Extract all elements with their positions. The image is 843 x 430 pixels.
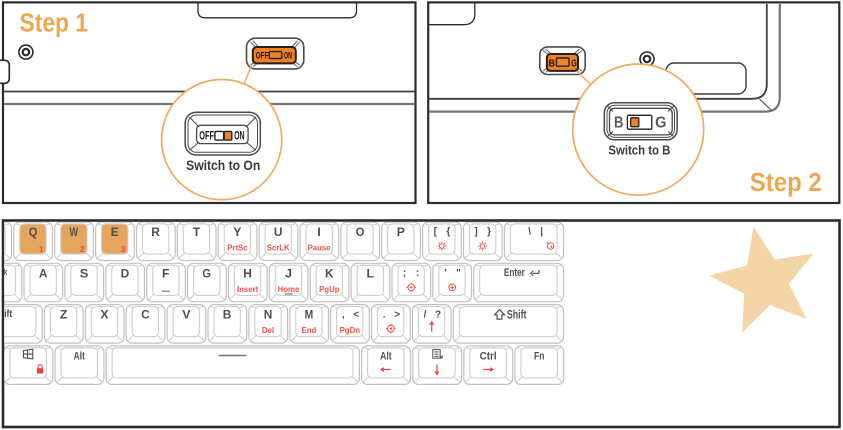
svg-text::: : — [416, 268, 419, 279]
svg-text:2: 2 — [80, 245, 85, 254]
svg-text:{: { — [446, 227, 450, 238]
svg-text:>: > — [394, 309, 400, 320]
svg-text:K: K — [325, 266, 334, 280]
svg-text:\: \ — [528, 227, 531, 238]
svg-text:End: End — [302, 326, 317, 335]
svg-text:;: ; — [403, 268, 406, 279]
svg-text:<: < — [353, 309, 359, 320]
svg-text:Switch to On: Switch to On — [186, 158, 260, 173]
svg-text:3: 3 — [121, 245, 126, 254]
svg-text:J: J — [285, 266, 292, 280]
svg-text:V: V — [182, 308, 191, 322]
svg-text:Fn: Fn — [534, 350, 545, 362]
svg-text:W: W — [70, 225, 79, 239]
svg-text:X: X — [100, 308, 109, 322]
svg-text:Del: Del — [262, 326, 274, 335]
svg-text:PrtSc: PrtSc — [227, 244, 248, 253]
svg-text:/: / — [424, 309, 427, 320]
svg-text:Step 1: Step 1 — [20, 10, 89, 38]
svg-text:P: P — [397, 225, 405, 239]
svg-text:B: B — [549, 58, 556, 69]
svg-text:Switch to B: Switch to B — [608, 142, 670, 157]
svg-text:': ' — [444, 268, 446, 279]
svg-text:E: E — [111, 225, 119, 239]
svg-text:OFF: OFF — [256, 51, 269, 61]
svg-text:Alt: Alt — [380, 350, 392, 362]
svg-text:H: H — [243, 266, 252, 280]
svg-text:F: F — [162, 266, 170, 280]
svg-text:Y: Y — [233, 225, 241, 239]
svg-text:G: G — [202, 266, 211, 280]
svg-text:M: M — [305, 308, 314, 322]
svg-text:Shift: Shift — [507, 308, 527, 322]
svg-text:N: N — [264, 308, 273, 322]
svg-text:D: D — [121, 266, 130, 280]
svg-text:|: | — [540, 227, 543, 238]
svg-text:T: T — [193, 225, 201, 239]
svg-text:ON: ON — [284, 51, 292, 61]
svg-text:Enter: Enter — [504, 267, 525, 279]
svg-text:C: C — [141, 308, 150, 322]
svg-text:Home: Home — [278, 285, 300, 294]
svg-text:OFF: OFF — [199, 128, 214, 142]
svg-text:Q: Q — [29, 225, 38, 239]
svg-text:PgDn: PgDn — [340, 326, 361, 335]
svg-text:Insert: Insert — [237, 285, 259, 294]
svg-text:B: B — [614, 114, 623, 131]
svg-text:,: , — [342, 309, 345, 320]
svg-text:]: ] — [474, 227, 477, 238]
svg-text:G: G — [655, 114, 666, 131]
svg-text:B: B — [223, 308, 232, 322]
svg-text:Alt: Alt — [73, 350, 85, 362]
svg-text:U: U — [274, 225, 283, 239]
svg-text:Pause: Pause — [308, 244, 332, 253]
svg-text:O: O — [356, 225, 365, 239]
svg-text:S: S — [80, 266, 89, 280]
svg-text:Step 2: Step 2 — [750, 169, 822, 197]
svg-text:A: A — [39, 266, 48, 280]
svg-text:R: R — [151, 225, 160, 239]
svg-text:": " — [456, 268, 461, 279]
svg-text:PgUp: PgUp — [319, 285, 340, 294]
svg-text:Z: Z — [60, 308, 68, 322]
svg-text:L: L — [366, 266, 374, 280]
svg-text:?: ? — [435, 309, 441, 320]
svg-text:G: G — [571, 58, 577, 69]
svg-text:ON: ON — [234, 128, 245, 142]
svg-text:1: 1 — [39, 245, 44, 254]
svg-text:Ctrl: Ctrl — [480, 350, 497, 362]
svg-text:}: } — [487, 227, 491, 238]
svg-text:ScrLK: ScrLK — [267, 244, 290, 253]
svg-text:.: . — [383, 309, 386, 320]
svg-text:I: I — [317, 225, 320, 239]
